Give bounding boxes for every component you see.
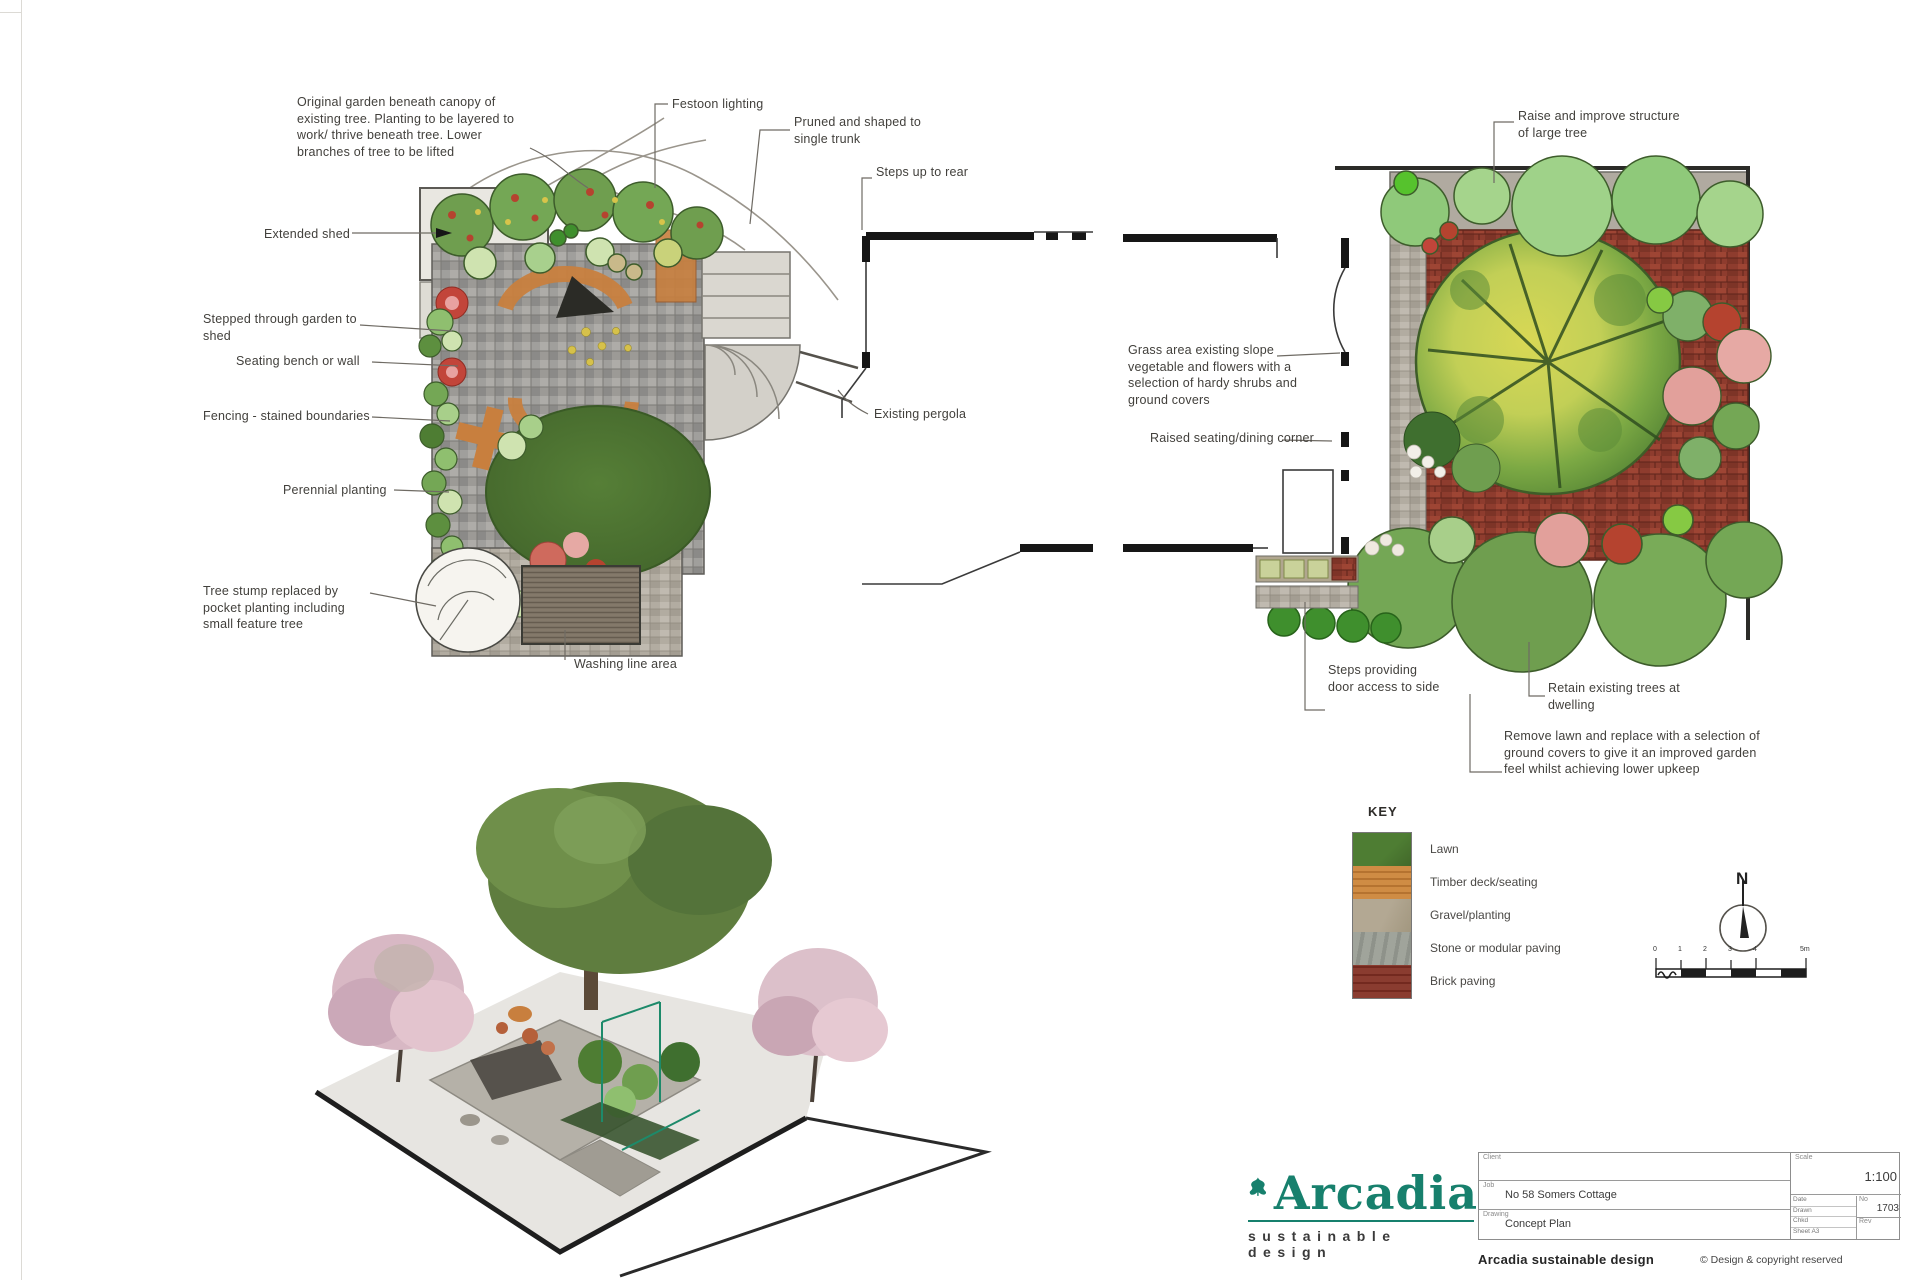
logo-name: Arcadia: [1274, 1170, 1478, 1216]
annotation-seating-bench: Seating bench or wall: [236, 353, 386, 370]
upper-steps: [702, 252, 790, 338]
annotation-retain-trees: Retain existing trees at dwelling: [1548, 680, 1723, 713]
scale-bar: [1656, 958, 1806, 978]
scale-tick: 5m: [1800, 946, 1810, 953]
north-compass: N: [1720, 869, 1766, 951]
tree-stump-rings: [416, 548, 520, 652]
leaf-icon: [1248, 1158, 1268, 1216]
meta-sheet-label: Sheet: [1793, 1228, 1810, 1235]
fan-steps: [705, 345, 800, 440]
key-swatch-bar: [1352, 832, 1412, 999]
annotation-extended-shed: Extended shed: [238, 226, 350, 243]
meta-sheet-value: A3: [1811, 1228, 1819, 1235]
back-garden-plan: [416, 118, 1093, 656]
garden-plan-drawing: N: [0, 0, 1920, 1280]
annotation-perennial-planting: Perennial planting: [283, 482, 413, 499]
arcadia-logo: Arcadia sustainable design: [1248, 1158, 1478, 1260]
pergola-rails: [796, 352, 858, 402]
no-label: No: [1859, 1196, 1899, 1203]
drawing-value: Concept Plan: [1505, 1218, 1786, 1230]
meta-drawn-label: Drawn: [1793, 1207, 1812, 1214]
footer-company: Arcadia sustainable design: [1478, 1252, 1654, 1267]
client-label: Client: [1483, 1154, 1786, 1161]
meta-chkd-label: Chkd: [1793, 1217, 1808, 1224]
key-swatch-brick: [1353, 965, 1411, 998]
house-walls-back: [866, 236, 1093, 548]
titleblock-no-cell: No 1703: [1857, 1196, 1901, 1218]
key-label-lawn: Lawn: [1430, 842, 1650, 856]
key-swatch-deck: [1353, 866, 1411, 899]
scale-value: 1:100: [1795, 1169, 1897, 1184]
logo-tagline: sustainable design: [1248, 1228, 1478, 1260]
annotation-large-tree: Raise and improve structure of large tre…: [1518, 108, 1683, 141]
key-label-deck: Timber deck/seating: [1430, 875, 1650, 889]
annotation-pruned-single-trunk: Pruned and shaped to single trunk: [794, 114, 944, 147]
titleblock-rev-cell: Rev: [1857, 1218, 1901, 1239]
no-value: 1703: [1859, 1203, 1899, 1214]
key-legend: KEY Lawn Timber deck/seating Gravel/plan…: [1350, 804, 1398, 819]
titleblock-site-row: Job No 58 Somers Cottage: [1479, 1181, 1790, 1209]
drawing-label: Drawing: [1483, 1211, 1786, 1218]
scale-tick: 2: [1703, 946, 1707, 953]
title-block: Client Job No 58 Somers Cottage Drawing …: [1478, 1152, 1900, 1240]
meta-date-label: Date: [1793, 1196, 1807, 1203]
titleblock-scale-cell: Scale 1:100: [1791, 1153, 1901, 1195]
scale-tick: 0: [1653, 946, 1657, 953]
annotation-stepped-through: Stepped through garden to shed: [203, 311, 368, 344]
annotation-raised-seating: Raised seating/dining corner: [1150, 430, 1340, 447]
annotation-original-garden: Original garden beneath canopy of existi…: [297, 94, 535, 160]
site-value: No 58 Somers Cottage: [1505, 1189, 1786, 1201]
scale-tick: 1: [1678, 946, 1682, 953]
washing-line-deck: [522, 566, 640, 644]
scale-tick: 3: [1728, 946, 1732, 953]
annotation-steps-up: Steps up to rear: [876, 164, 996, 181]
key-swatch-gravel: [1353, 899, 1411, 932]
scale-label: Scale: [1795, 1154, 1897, 1161]
key-label-stone: Stone or modular paving: [1430, 941, 1650, 955]
key-label-brick: Brick paving: [1430, 974, 1650, 988]
logo-rule: [1248, 1220, 1474, 1222]
titleblock-drawing-row: Drawing Concept Plan: [1479, 1210, 1790, 1238]
titleblock-meta: Date Drawn Chkd Sheet A3: [1791, 1196, 1857, 1239]
north-label: N: [1736, 869, 1748, 888]
key-swatch-lawn: [1353, 833, 1411, 866]
annotation-festoon-lighting: Festoon lighting: [672, 96, 802, 113]
annotation-remove-lawn: Remove lawn and replace with a selection…: [1504, 728, 1766, 778]
annotation-tree-stump: Tree stump replaced by pocket planting i…: [203, 583, 375, 633]
annotation-washing-line: Washing line area: [574, 656, 704, 673]
annotation-steps-side-access: Steps providing door access to side: [1328, 662, 1443, 695]
key-title: KEY: [1368, 804, 1398, 819]
rev-label: Rev: [1859, 1218, 1899, 1225]
scale-tick: 4: [1753, 946, 1757, 953]
annotation-existing-pergola: Existing pergola: [874, 406, 1014, 423]
key-swatch-stone: [1353, 932, 1411, 965]
site-label: Job: [1483, 1182, 1786, 1189]
drawing-sheet: N Original garden beneath canopy of exis…: [0, 0, 1920, 1280]
titleblock-client-row: Client: [1479, 1153, 1790, 1181]
annotation-grass-area: Grass area existing slope vegetable and …: [1128, 342, 1333, 408]
front-garden-plan: [1123, 156, 1782, 672]
key-label-gravel: Gravel/planting: [1430, 908, 1650, 922]
annotation-fencing: Fencing - stained boundaries: [203, 408, 383, 425]
footer-copyright: © Design & copyright reserved: [1700, 1254, 1843, 1266]
isometric-garden-view: [316, 782, 986, 1276]
